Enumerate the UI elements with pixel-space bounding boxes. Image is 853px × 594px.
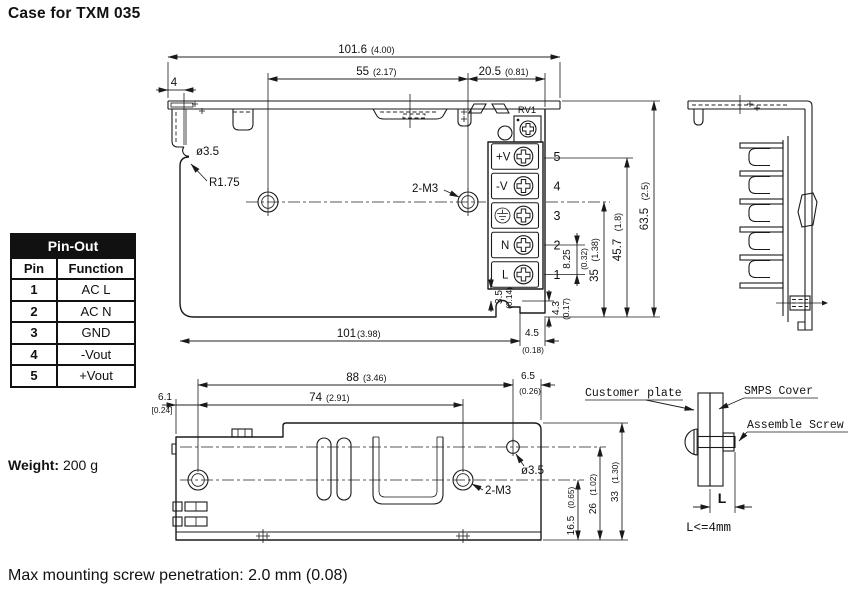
- screw-boss: [723, 433, 734, 451]
- terminal-pin-number: 3: [554, 209, 561, 223]
- side-view: [688, 95, 828, 330]
- dim-notch-in: (0.14): [504, 287, 514, 309]
- dim-hole-span-in: (2.17): [373, 67, 397, 77]
- pin-number: 2: [11, 301, 57, 323]
- earth-ground-icon: [495, 208, 510, 223]
- dim-65-mm: 6.5: [521, 371, 535, 382]
- terminal-pin-number: 5: [554, 150, 561, 164]
- side-screw: [776, 296, 828, 330]
- bottom-view: 88 (3.46) 74 (2.91) 6.1 [0.24] 6.5 (0.26…: [152, 371, 628, 543]
- case-outline-bottom: [176, 423, 541, 540]
- terminal-pin-number: 2: [554, 239, 561, 253]
- dim-35-in: (1.38): [590, 238, 600, 262]
- l-dim-label: L: [718, 490, 727, 506]
- mounting-holes-label: 2-M3: [485, 485, 511, 497]
- pinout-col-pin: Pin: [11, 258, 57, 279]
- hole-dia-label: ø3.5: [521, 465, 544, 477]
- svg-text:26 (1.02): 26 (1.02): [583, 474, 600, 514]
- corner-radius-label: R1.75: [209, 177, 240, 189]
- terminal-row: +V 5: [492, 144, 561, 170]
- left-bracket: [172, 109, 189, 156]
- table-row: 1 AC L: [11, 279, 135, 301]
- customer-plate: [698, 393, 710, 486]
- dim-hole-to-edge-in: (0.81): [505, 67, 529, 77]
- hex-hole: [798, 193, 817, 227]
- top-tab: [232, 429, 252, 437]
- terminal-fins: [740, 143, 783, 288]
- customer-plate-label: Customer plate: [585, 387, 682, 400]
- pin-function: AC L: [57, 279, 135, 301]
- svg-text:63.5 (2.5): 63.5 (2.5): [635, 182, 652, 230]
- mounting-flange: [168, 94, 560, 130]
- dim-65-in: (0.26): [519, 386, 541, 396]
- smps-cover-label: SMPS Cover: [744, 385, 813, 398]
- l-dimension: L L<=4mm: [686, 452, 752, 535]
- pin-function: AC N: [57, 301, 135, 323]
- table-row: 3 GND: [11, 322, 135, 344]
- weight-label: Weight:: [8, 457, 59, 473]
- dim-notch-offset-in: (0.18): [522, 345, 544, 355]
- trimpot-label: RV1: [518, 105, 536, 116]
- terminal-label: +V: [496, 152, 511, 164]
- pinout-col-function: Function: [57, 258, 135, 279]
- dim-33-mm: 33: [610, 491, 621, 503]
- dim-74-in: (2.91): [326, 393, 350, 403]
- terminal-pin-number: 1: [554, 268, 561, 282]
- terminal-row: -V 4: [492, 173, 561, 199]
- dim-step-in: (0.17): [561, 298, 571, 320]
- datasheet-page: RV1 +V 5 -V 4: [0, 0, 853, 594]
- page-title: Case for TXM 035: [8, 5, 140, 23]
- dim-height-mm: 63.5: [639, 208, 651, 230]
- assembly-detail: Customer plate SMPS Cover Assemble Screw…: [585, 385, 848, 535]
- table-row: 4 -Vout: [11, 344, 135, 366]
- front-view-dimensions: 101.6 (4.00) 55 (2.17) 20.5 (0.81) 4 ø3.…: [156, 44, 660, 355]
- dim-35-mm: 35: [589, 269, 601, 282]
- dim-61-in: [0.24]: [152, 405, 173, 415]
- svg-text:33 (1.30): 33 (1.30): [605, 462, 622, 502]
- pin-number: 3: [11, 322, 57, 344]
- mounting-screw-note: Max mounting screw penetration: 2.0 mm (…: [8, 567, 348, 585]
- pin-number: 1: [11, 279, 57, 301]
- dim-hole-to-edge-mm: 20.5: [479, 66, 501, 78]
- led-icon: [498, 126, 512, 140]
- case-outline-front: [180, 109, 545, 317]
- dim-74-mm: 74: [309, 392, 322, 404]
- dim-33-in: (1.30): [610, 462, 620, 484]
- dim-165-mm: 16.5: [566, 515, 577, 535]
- center-mark: [256, 529, 270, 543]
- pin-number: 5: [11, 365, 57, 387]
- dim-457-in: (1.8): [613, 213, 623, 232]
- terminal-label: L: [502, 270, 509, 282]
- l-max-note: L<=4mm: [686, 521, 731, 535]
- table-row: 5 +Vout: [11, 365, 135, 387]
- dim-88-in: (3.46): [363, 373, 387, 383]
- terminal-label: -V: [496, 181, 508, 193]
- dim-body-width-mm: 101: [337, 328, 356, 340]
- pin-function: GND: [57, 322, 135, 344]
- dim-26-in: (1.02): [588, 474, 598, 496]
- pinout-table: Pin-Out Pin Function 1 AC L 2 AC N 3 GND…: [10, 233, 136, 388]
- pin-function: +Vout: [57, 365, 135, 387]
- terminal-pin-number: 4: [554, 180, 561, 194]
- dim-notch-offset-mm: 4.5: [525, 328, 539, 339]
- dim-body-width-in: (3.98): [357, 329, 381, 339]
- terminal-label: N: [501, 240, 509, 252]
- hole-dia-label: ø3.5: [196, 146, 219, 158]
- dim-88-mm: 88: [346, 372, 359, 384]
- assemble-screw-label: Assemble Screw: [747, 419, 844, 432]
- weight-note: Weight: 200 g: [8, 457, 98, 473]
- dim-457-mm: 45.7: [612, 239, 624, 261]
- weight-value: 200 g: [63, 457, 98, 473]
- trimpot-icon: RV1: [514, 105, 541, 142]
- center-mark: [456, 529, 470, 543]
- pinout-header: Pin-Out: [11, 234, 135, 258]
- dim-hole-span-mm: 55: [356, 66, 369, 78]
- pin-function: -Vout: [57, 344, 135, 366]
- bottom-holes: [188, 438, 519, 490]
- table-row: 2 AC N: [11, 301, 135, 323]
- dim-overall-width-in: (4.00): [371, 45, 395, 55]
- bottom-view-dimensions: 88 (3.46) 74 (2.91) 6.1 [0.24] 6.5 (0.26…: [152, 371, 628, 540]
- front-view: RV1 +V 5 -V 4: [156, 44, 660, 355]
- dim-165-in: (0.65): [566, 486, 576, 508]
- dim-26-mm: 26: [588, 503, 599, 515]
- dim-flange: 4: [171, 77, 178, 89]
- vent-grille: [173, 502, 207, 526]
- pin-number: 4: [11, 344, 57, 366]
- dim-overall-width-mm: 101.6: [338, 44, 367, 56]
- terminal-block: +V 5 -V 4 3: [488, 142, 561, 289]
- terminal-row: 3: [492, 203, 561, 229]
- smps-cover: [710, 393, 723, 486]
- dim-height-in: (2.5): [640, 182, 650, 201]
- svg-text:16.5 (0.65): 16.5 (0.65): [561, 486, 578, 535]
- dim-pitch-mm: 8.25: [562, 249, 573, 269]
- mounting-holes-label: 2-M3: [412, 183, 438, 195]
- dim-61-mm: 6.1: [158, 392, 172, 403]
- svg-text:45.7 (1.8): 45.7 (1.8): [608, 213, 625, 261]
